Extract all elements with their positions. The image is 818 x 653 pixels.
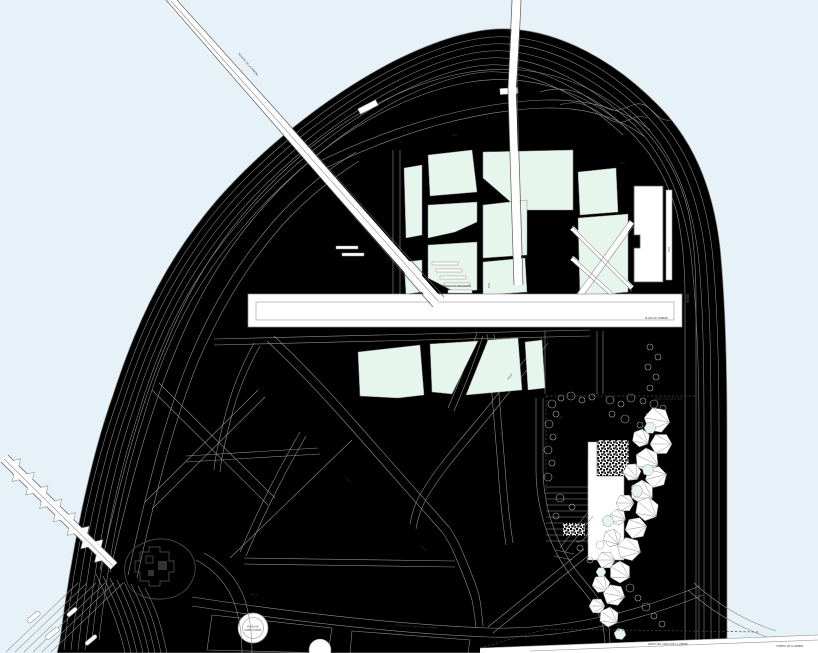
vial-label: VIAL (160, 350, 166, 353)
site-plan-drawing: SUP.=24.313 m2 PUENTE DE LA RIBERA PARQU… (0, 0, 818, 653)
vial-label: VIAL (667, 247, 670, 253)
vial-label: VIAL (620, 162, 626, 165)
plaza-label: PLAZA DE CRIBERA (645, 317, 668, 320)
plan-canvas: SUP.=24.313 m2 PUENTE DE LA RIBERA PARQU… (0, 0, 818, 653)
torre-label-2: CALAHORRA (97, 591, 112, 594)
vial-label: VIAL (487, 283, 490, 289)
area-label: SUP.=24.313 m2 (654, 397, 682, 401)
paseo-bottom-label: PASEO DEL CANTO DE LA RIBERA (648, 643, 688, 646)
park-label: PARQUE DE MIRADORES (442, 285, 471, 288)
canopy-module (596, 568, 606, 577)
mosaic-panel-2 (563, 523, 585, 536)
vial-label: VIAL (452, 134, 458, 137)
plaza-tomas-label-2: SANTO TOMAS (245, 629, 262, 632)
puerto-label: PUERTO DE LA RIBERA (777, 645, 804, 648)
boulevard (248, 294, 682, 327)
